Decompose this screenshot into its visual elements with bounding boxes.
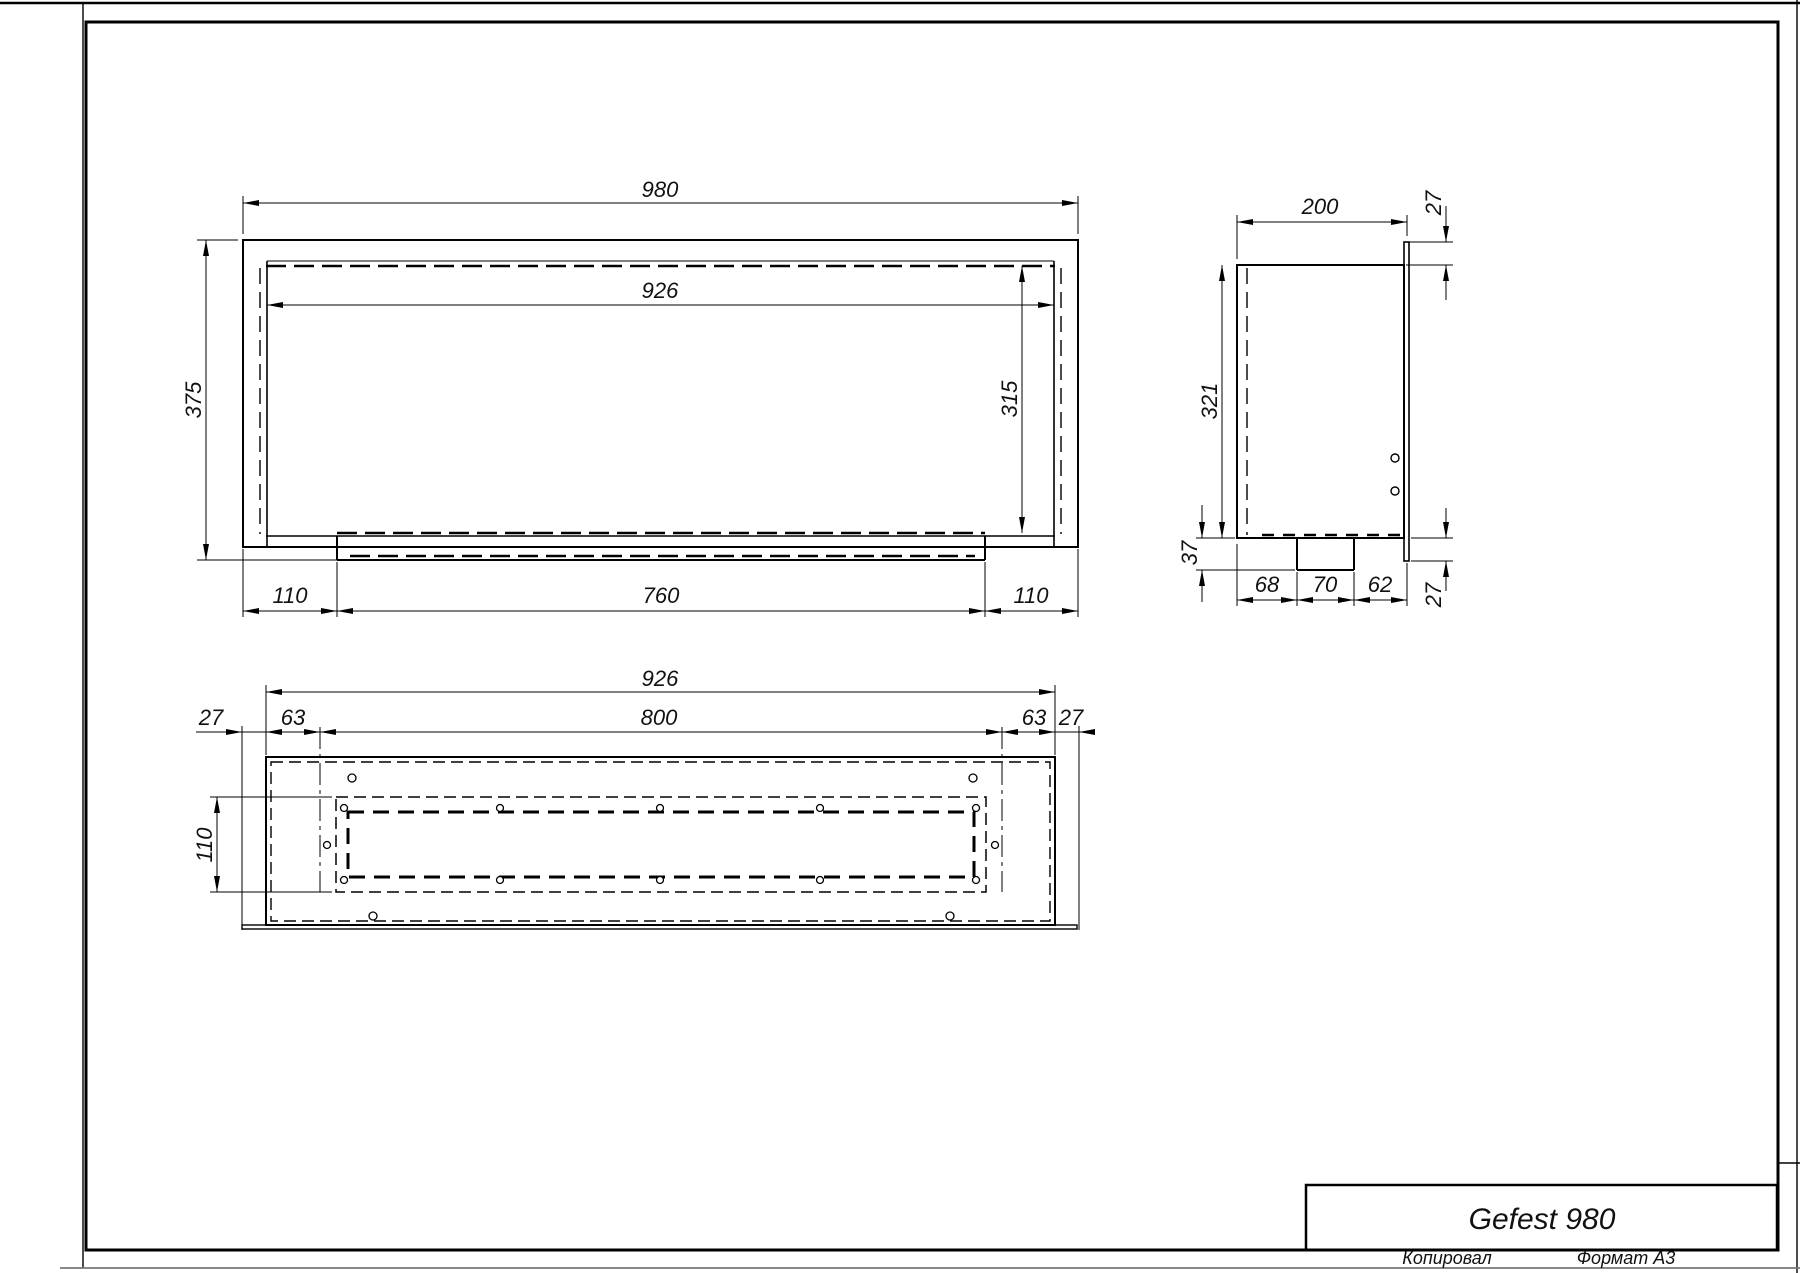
dimension-arrow bbox=[266, 689, 282, 695]
dimension-arrow bbox=[337, 608, 353, 614]
dimension-arrow bbox=[266, 729, 282, 735]
dim-outlet-width: 70 bbox=[1313, 572, 1338, 597]
hole bbox=[497, 805, 504, 812]
dim-bottom-opening-width: 926 bbox=[642, 666, 679, 691]
dim-flange-bottom-offset: 27 bbox=[1421, 582, 1446, 608]
dim-left-offset: 110 bbox=[272, 583, 308, 608]
dim-outlet-height: 37 bbox=[1177, 540, 1202, 565]
dimension-arrow bbox=[1281, 597, 1297, 603]
dimension-arrow bbox=[1019, 266, 1025, 282]
dim-depth: 200 bbox=[1301, 194, 1339, 219]
dimension-arrow bbox=[321, 608, 337, 614]
hole bbox=[657, 877, 664, 884]
dim-overall-width: 980 bbox=[642, 177, 679, 202]
dimension-arrow bbox=[969, 608, 985, 614]
hole bbox=[946, 912, 954, 920]
label-copied: Копировал bbox=[1402, 1248, 1492, 1268]
dimension-arrow bbox=[1354, 597, 1370, 603]
hole bbox=[324, 842, 331, 849]
dimension-arrow bbox=[214, 876, 220, 892]
dimension-arrow bbox=[1443, 561, 1449, 577]
dim-flange-top-offset: 27 bbox=[1421, 190, 1446, 216]
title-block: Gefest 980КопировалФормат А3 bbox=[1306, 1185, 1777, 1268]
dimension-arrow bbox=[203, 240, 209, 256]
dim-slot-height: 110 bbox=[192, 827, 217, 863]
hole bbox=[1391, 454, 1399, 462]
dimension-arrow bbox=[1038, 302, 1054, 308]
dimension-arrow bbox=[1391, 597, 1407, 603]
dimension-arrow bbox=[320, 729, 336, 735]
hole bbox=[973, 805, 980, 812]
dimension-arrow bbox=[1297, 597, 1313, 603]
dim-right-offset: 110 bbox=[1013, 583, 1049, 608]
side-flange bbox=[1404, 242, 1409, 561]
hole bbox=[969, 774, 977, 782]
bottom-body bbox=[266, 757, 1055, 925]
dimension-arrow bbox=[1062, 200, 1078, 206]
hole bbox=[657, 805, 664, 812]
dimension-arrow bbox=[1219, 522, 1225, 538]
hole bbox=[817, 877, 824, 884]
dimension-arrow bbox=[1039, 689, 1055, 695]
front-view: 980926375315110760110 bbox=[181, 177, 1078, 617]
dim-slot-width: 800 bbox=[641, 705, 678, 730]
bottom-view: 92680027636327110 bbox=[192, 666, 1095, 930]
hole bbox=[497, 877, 504, 884]
dimension-arrow bbox=[1237, 219, 1253, 225]
frame-border bbox=[86, 22, 1778, 1250]
dim-opening-width: 926 bbox=[642, 278, 679, 303]
slot-opening bbox=[348, 812, 974, 877]
dimension-arrow bbox=[1338, 597, 1354, 603]
dimension-arrow bbox=[985, 608, 1001, 614]
dimension-arrow bbox=[1443, 265, 1449, 281]
dimension-arrow bbox=[1019, 517, 1025, 533]
dim-overall-height: 375 bbox=[181, 381, 206, 418]
dimension-arrow bbox=[1219, 265, 1225, 281]
dimension-arrow bbox=[1062, 608, 1078, 614]
hole bbox=[973, 877, 980, 884]
side-body bbox=[1237, 265, 1404, 538]
dim-left-frame-offset: 27 bbox=[198, 705, 224, 730]
hole bbox=[348, 774, 356, 782]
dim-rear-offset: 68 bbox=[1255, 572, 1280, 597]
title-model: Gefest 980 bbox=[1469, 1203, 1616, 1236]
drawing-frame bbox=[0, 0, 1800, 1273]
dimension-arrow bbox=[1237, 597, 1253, 603]
dimension-arrow bbox=[304, 729, 320, 735]
hole bbox=[341, 805, 348, 812]
side-view: 200273213727687062 bbox=[1177, 190, 1453, 608]
drawing-sheet: 9809263753151107601102002732137276870629… bbox=[0, 0, 1800, 1273]
dimension-arrow bbox=[243, 200, 259, 206]
hole bbox=[369, 912, 377, 920]
dimension-arrow bbox=[1199, 522, 1205, 538]
hole bbox=[341, 877, 348, 884]
dimension-arrow bbox=[1002, 729, 1018, 735]
dim-right-inset: 63 bbox=[1022, 705, 1047, 730]
dimension-arrow bbox=[214, 797, 220, 813]
hole bbox=[992, 842, 999, 849]
hole bbox=[817, 805, 824, 812]
bottom-insulation bbox=[271, 762, 1050, 921]
dim-right-frame-offset: 27 bbox=[1058, 705, 1084, 730]
dim-burner-width: 760 bbox=[643, 583, 680, 608]
dimension-arrow bbox=[1443, 522, 1449, 538]
dimension-arrow bbox=[1199, 570, 1205, 586]
dim-front-offset: 62 bbox=[1368, 572, 1392, 597]
label-format: Формат А3 bbox=[1577, 1248, 1676, 1268]
dimension-arrow bbox=[267, 302, 283, 308]
dim-left-inset: 63 bbox=[281, 705, 306, 730]
dimension-arrow bbox=[243, 608, 259, 614]
dimension-arrow bbox=[986, 729, 1002, 735]
dimension-arrow bbox=[226, 729, 242, 735]
bottom-flange bbox=[242, 925, 1077, 929]
dimension-arrow bbox=[1391, 219, 1407, 225]
dim-opening-height: 315 bbox=[997, 380, 1022, 417]
dimension-arrow bbox=[203, 544, 209, 560]
dim-inner-height: 321 bbox=[1197, 383, 1222, 420]
hole bbox=[1391, 487, 1399, 495]
engineering-drawing: 9809263753151107601102002732137276870629… bbox=[0, 0, 1800, 1273]
dimension-arrow bbox=[1443, 226, 1449, 242]
